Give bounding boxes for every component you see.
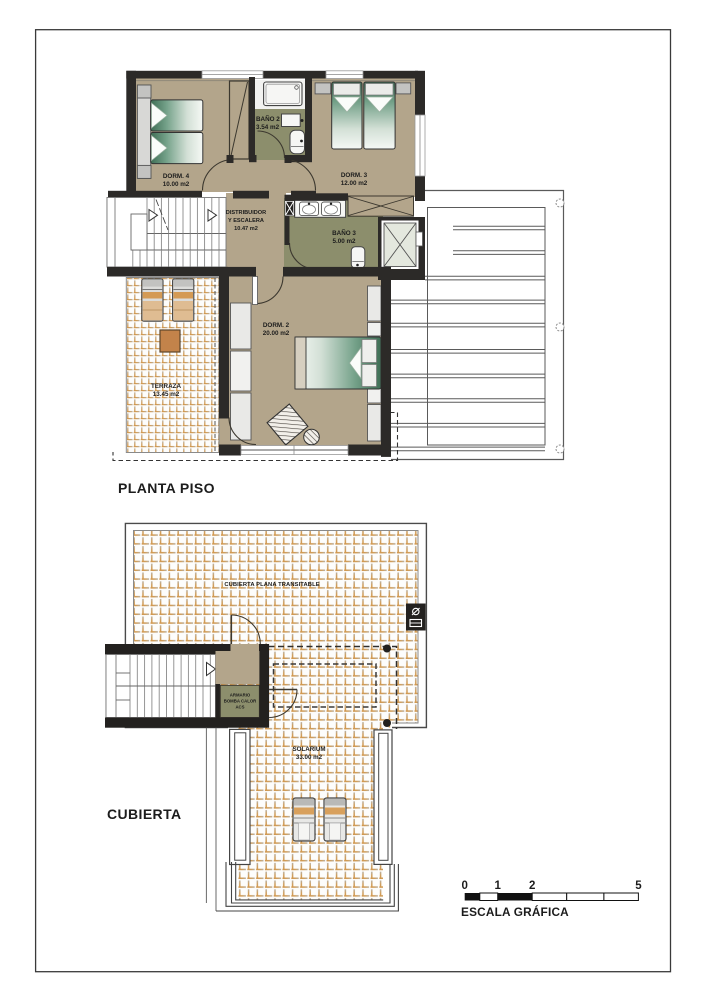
svg-text:CUBIERTA: CUBIERTA: [107, 806, 182, 822]
svg-text:CUBIERTA PLANA TRANSITABLE: CUBIERTA PLANA TRANSITABLE: [224, 582, 319, 588]
svg-text:12.00 m2: 12.00 m2: [341, 180, 368, 187]
svg-text:0: 0: [461, 880, 467, 892]
svg-text:DISTRIBUIDOR: DISTRIBUIDOR: [226, 210, 266, 216]
svg-text:DORM. 3: DORM. 3: [341, 172, 368, 179]
svg-text:DORM. 4: DORM. 4: [163, 173, 190, 180]
svg-text:ARMARIO: ARMARIO: [230, 693, 251, 698]
svg-text:5.00 m2: 5.00 m2: [332, 238, 356, 245]
svg-text:BAÑO 3: BAÑO 3: [332, 228, 356, 237]
svg-text:PLANTA PISO: PLANTA PISO: [118, 480, 215, 496]
svg-text:2: 2: [529, 880, 535, 892]
svg-text:ACS: ACS: [235, 705, 244, 710]
svg-text:10.47 m2: 10.47 m2: [234, 226, 258, 232]
svg-text:SOLARIUM: SOLARIUM: [293, 746, 326, 753]
svg-text:5: 5: [635, 880, 642, 892]
svg-text:BAÑO 2: BAÑO 2: [256, 114, 280, 123]
svg-text:Y ESCALERA: Y ESCALERA: [228, 218, 264, 224]
svg-text:3.54 m2: 3.54 m2: [256, 124, 280, 131]
svg-text:13.45 m2: 13.45 m2: [153, 391, 180, 398]
svg-text:10.00 m2: 10.00 m2: [163, 181, 190, 188]
svg-text:ESCALA GRÁFICA: ESCALA GRÁFICA: [461, 905, 569, 919]
svg-text:TERRAZA: TERRAZA: [151, 383, 182, 390]
svg-text:1: 1: [494, 880, 501, 892]
svg-text:BOMBA CALOR: BOMBA CALOR: [224, 699, 257, 704]
svg-text:33.00 m2: 33.00 m2: [296, 754, 323, 761]
svg-text:DORM. 2: DORM. 2: [263, 322, 290, 329]
svg-text:20.00 m2: 20.00 m2: [263, 330, 290, 337]
